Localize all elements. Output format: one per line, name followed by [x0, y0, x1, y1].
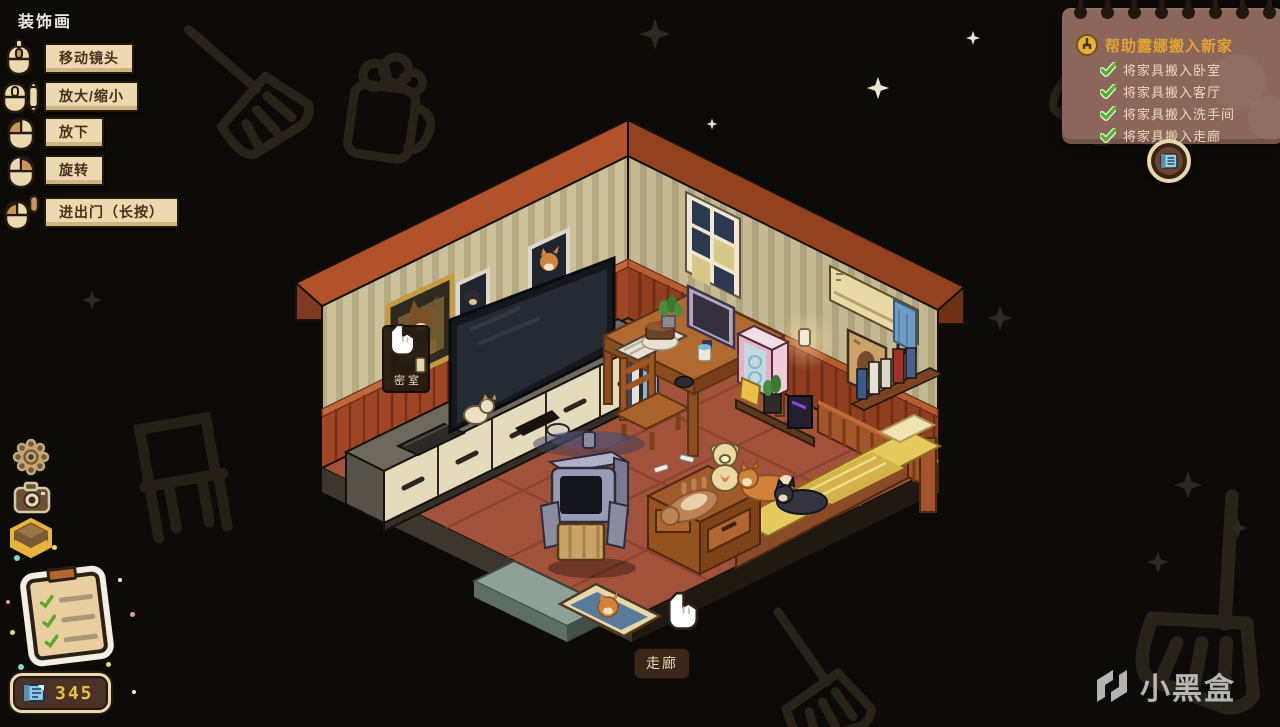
hint-move-camera: 移动镜头: [2, 38, 134, 78]
quest-collapse-button[interactable]: [1147, 139, 1191, 183]
quest-task-label: 将家具搬入客厅: [1123, 82, 1221, 101]
confetti-dot: [118, 578, 122, 582]
speaker: [788, 396, 812, 428]
confetti-dot: [130, 612, 135, 617]
hint-label: 旋转: [44, 155, 104, 186]
quest-title-row: 帮助露娜搬入新家: [1076, 34, 1233, 56]
quest-panel: 帮助露娜搬入新家 将家具搬入卧室 将家具搬入客厅 将家具搬入洗手间: [1062, 8, 1280, 144]
hint-label: 放大/缩小: [44, 81, 139, 112]
game-screen: 走廊 密室 装饰画 移动镜头 放大/缩小 放下 旋转 进出门（长按）: [0, 0, 1280, 727]
task-clipboard-button[interactable]: [25, 571, 108, 661]
confetti-dot: [52, 545, 57, 550]
hint-label: 进出门（长按）: [44, 197, 179, 228]
mouse-scroll-icon: [2, 76, 42, 116]
confetti-dot: [18, 664, 24, 670]
confetti-dot: [14, 555, 20, 561]
watermark-text: 小黑盒: [1140, 664, 1236, 708]
confetti-dot: [10, 630, 15, 635]
quest-task-list: 将家具搬入卧室 将家具搬入客厅 将家具搬入洗手间 将家具搬入走廊: [1100, 60, 1235, 145]
camera-icon: [13, 480, 51, 514]
quest-task-label: 将家具搬入卧室: [1123, 60, 1221, 79]
secret-room-label: 密室: [386, 372, 430, 388]
confetti-dot: [132, 690, 136, 694]
mug[interactable]: [698, 344, 711, 361]
computer-mouse[interactable]: [675, 377, 693, 388]
check-icon: [1100, 106, 1116, 121]
quest-task: 将家具搬入客厅: [1100, 82, 1235, 101]
settings-gear-icon: [12, 438, 50, 476]
hint-label: 移动镜头: [44, 43, 134, 74]
page-title: 装饰画: [18, 8, 72, 32]
watermark: 小黑盒: [1092, 664, 1236, 708]
furniture-list-icon: [1160, 153, 1178, 169]
coupon-icon: [23, 684, 45, 702]
mouse-right-click-icon: [2, 150, 42, 190]
mouse-long-press-icon: [2, 192, 42, 232]
hint-label: 放下: [44, 117, 104, 148]
currency-value: 345: [55, 683, 94, 704]
mouse-left-click-icon: [2, 112, 42, 152]
check-icon: [1100, 128, 1116, 143]
quest-task-label: 将家具搬入洗手间: [1123, 104, 1235, 123]
quest-task: 将家具搬入洗手间: [1100, 104, 1235, 123]
settings-button[interactable]: [12, 438, 50, 476]
camera-button[interactable]: [13, 480, 51, 514]
plant-pot: [764, 394, 781, 413]
check-icon: [1100, 62, 1116, 77]
confetti-dot: [6, 600, 10, 604]
hint-enter-door: 进出门（长按）: [2, 192, 179, 232]
quest-title: 帮助露娜搬入新家: [1105, 35, 1233, 56]
currency-display[interactable]: 345: [10, 673, 111, 713]
hint-zoom: 放大/缩小: [2, 76, 139, 116]
quest-coin-icon: [1076, 34, 1098, 56]
hint-place: 放下: [2, 112, 104, 152]
confetti-dot: [106, 662, 111, 667]
hint-rotate: 旋转: [2, 150, 104, 190]
heybox-logo: [1092, 666, 1132, 706]
clipboard-clip: [46, 566, 77, 584]
corridor-label: 走廊: [634, 648, 690, 679]
mouse-middle-drag-icon: [2, 38, 42, 78]
check-icon: [1100, 84, 1116, 99]
quest-task: 将家具搬入卧室: [1100, 60, 1235, 79]
